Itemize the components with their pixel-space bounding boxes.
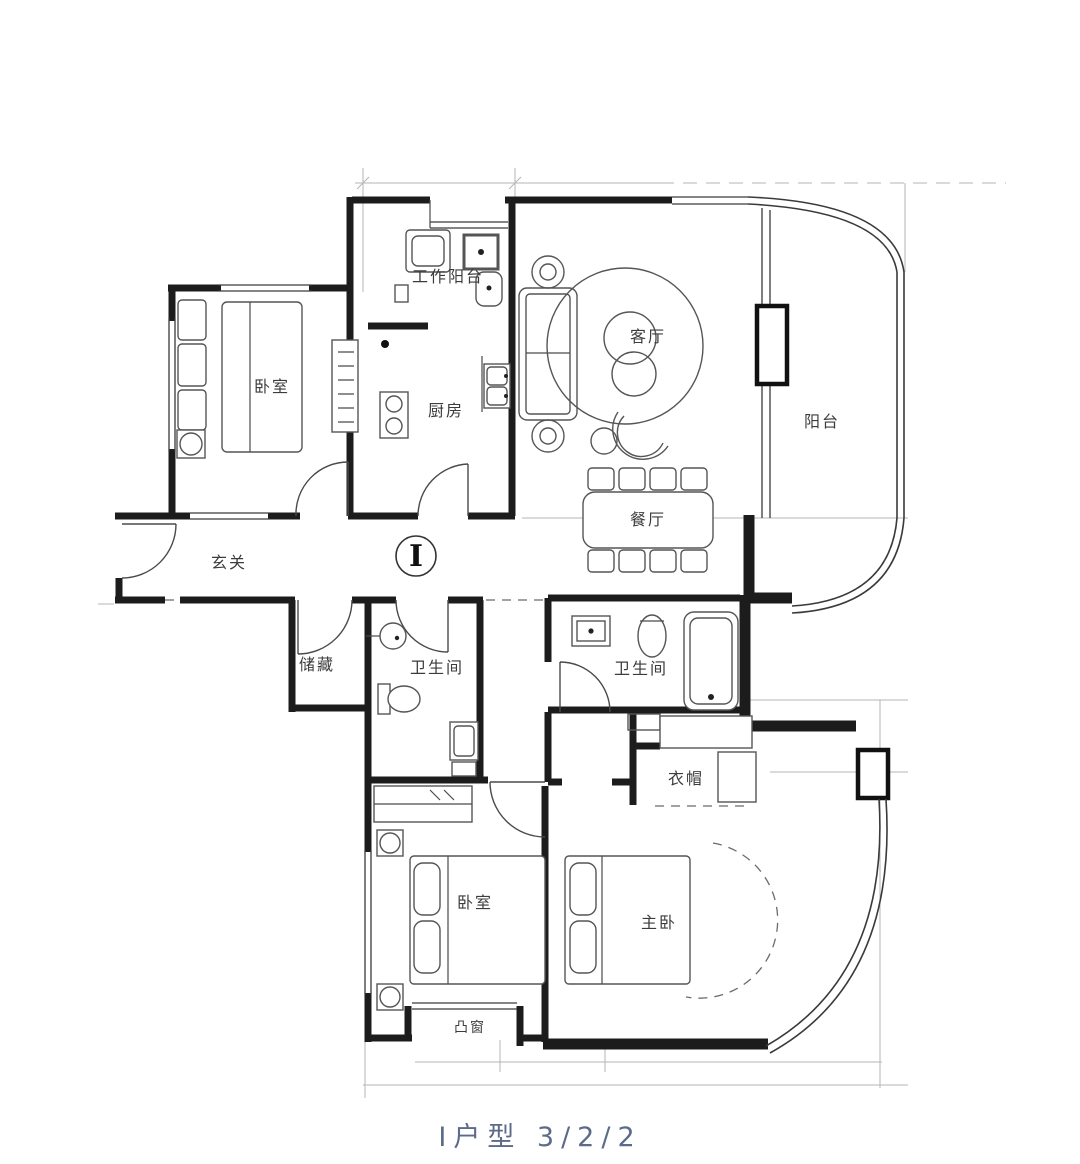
chair	[681, 550, 707, 572]
pillow	[570, 921, 596, 973]
room-label-work-balcony: 工作阳台	[412, 268, 484, 286]
chair	[588, 468, 614, 490]
room-label-bathroom-left: 卫生间	[410, 659, 464, 677]
furniture-work-balcony	[395, 230, 502, 306]
wash-basin	[380, 623, 406, 649]
unit-marker: I	[396, 536, 436, 576]
room-label-cloakroom: 衣帽	[668, 770, 704, 788]
furniture-living-room	[519, 256, 703, 459]
room-label-storage: 储藏	[299, 656, 335, 674]
furniture-cloakroom	[660, 716, 756, 802]
pillow	[414, 921, 440, 973]
room-label-bedroom-bottom: 卧室	[457, 894, 493, 912]
room-label-bedroom-tl: 卧室	[254, 378, 290, 396]
balcony-column-bottom	[858, 750, 888, 798]
seat-cushion	[178, 344, 206, 386]
room-label-entry: 玄关	[211, 554, 247, 572]
pillow	[570, 863, 596, 915]
door-entry	[122, 524, 176, 578]
stove	[380, 392, 408, 438]
floor-plan-page: I 工作阳台 客厅 阳台 卧室 厨房 餐厅 玄关 储藏 卫生间 卫生间 衣帽 卧…	[0, 0, 1080, 1164]
seat-cushion	[178, 300, 206, 340]
furniture-kitchen	[380, 356, 510, 438]
door-bedroom-bottom	[490, 782, 545, 837]
seat-cushion	[178, 390, 206, 430]
rug-dashed	[686, 843, 778, 998]
room-label-kitchen: 厨房	[428, 402, 464, 420]
balcony-curves	[748, 197, 904, 1053]
door-storage	[298, 600, 352, 654]
small-fixture	[395, 285, 408, 302]
chair	[681, 468, 707, 490]
closet-shelf	[718, 752, 756, 802]
chair	[650, 468, 676, 490]
door-bathroom-right	[560, 662, 610, 712]
plan-caption: I户型 3/2/2	[438, 1122, 641, 1153]
bedside-table	[377, 984, 403, 1010]
room-label-balcony: 阳台	[804, 413, 840, 431]
bedside-table	[377, 830, 403, 856]
door-kitchen	[418, 464, 468, 516]
closet-shelf	[660, 716, 752, 748]
chair	[619, 468, 645, 490]
bedside-table	[177, 430, 205, 458]
stool	[591, 428, 617, 454]
chair	[650, 550, 676, 572]
side-table	[532, 420, 564, 452]
room-label-master-bedroom: 主卧	[641, 914, 677, 932]
wardrobe	[332, 340, 358, 432]
door-bedroom-top-left	[296, 462, 348, 516]
chair	[588, 550, 614, 572]
unit-marker-text: I	[409, 539, 423, 574]
balcony-column-top	[757, 306, 787, 384]
floor-plan-canvas: I 工作阳台 客厅 阳台 卧室 厨房 餐厅 玄关 储藏 卫生间 卫生间 衣帽 卧…	[0, 0, 1080, 1164]
room-label-living-room: 客厅	[630, 328, 666, 346]
room-label-bay-window: 凸窗	[454, 1019, 486, 1035]
bed	[222, 302, 302, 452]
room-label-bathroom-right: 卫生间	[614, 660, 668, 678]
toilet	[388, 686, 420, 712]
side-table	[532, 256, 564, 288]
pillow	[414, 863, 440, 915]
chair	[619, 550, 645, 572]
kitchen-sink	[484, 364, 510, 408]
room-label-dining: 餐厅	[630, 511, 666, 529]
